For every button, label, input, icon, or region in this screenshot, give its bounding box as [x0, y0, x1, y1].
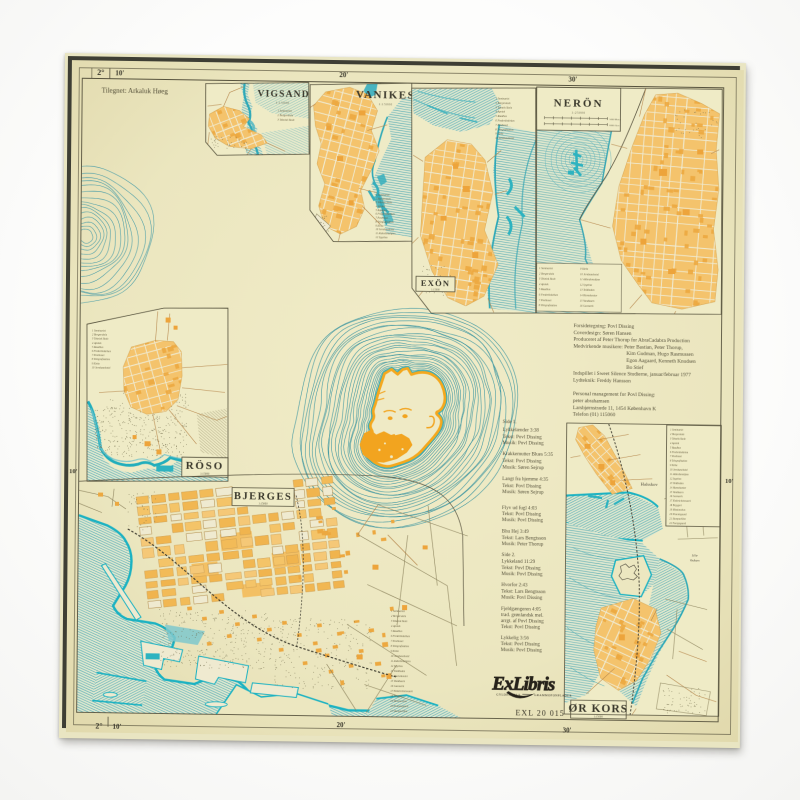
svg-text:Flyv ud fugl 4:03: Flyv ud fugl 4:03 — [502, 506, 537, 512]
svg-text:7 Posthuset: 7 Posthuset — [495, 124, 508, 127]
svg-text:Side 2.: Side 2. — [502, 553, 516, 558]
svg-text:10 Jernbanehotel: 10 Jernbanehotel — [495, 137, 514, 140]
svg-text:9 Kirke: 9 Kirke — [391, 650, 400, 653]
svg-text:Larsbjørnstræde 11, 1454 Køben: Larsbjørnstræde 11, 1454 København K — [573, 405, 657, 412]
svg-text:BJERGES: BJERGES — [234, 491, 292, 503]
svg-text:9 Kirke: 9 Kirke — [670, 464, 678, 467]
svg-text:22 Faergegaard: 22 Faergegaard — [669, 522, 686, 525]
svg-text:4 Apotek: 4 Apotek — [92, 342, 102, 345]
svg-text:11 Alderdomshjem: 11 Alderdomshjem — [375, 232, 395, 235]
svg-text:14 Havnekontor: 14 Havnekontor — [670, 486, 687, 489]
svg-text:6 Frederikskirken: 6 Frederikskirken — [670, 451, 689, 454]
svg-text:18 Bryggeri: 18 Bryggeri — [670, 504, 683, 507]
svg-text:Tilegnet: Arkaluk Høeg: Tilegnet: Arkaluk Høeg — [102, 87, 169, 96]
svg-text:11 Alderdomshjem: 11 Alderdomshjem — [670, 473, 689, 476]
svg-text:Musik: Peter Thorup: Musik: Peter Thorup — [502, 542, 544, 548]
svg-text:14 Havnekontor: 14 Havnekontor — [580, 294, 598, 297]
svg-text:VANIKES: VANIKES — [356, 89, 415, 102]
svg-text:12 Sygehus: 12 Sygehus — [580, 284, 592, 287]
svg-text:10 Jernbanehotel: 10 Jernbanehotel — [391, 655, 410, 658]
svg-text:Hvorfor 2:43: Hvorfor 2:43 — [501, 583, 528, 588]
svg-text:NERÖN: NERÖN — [554, 96, 604, 110]
svg-text:VIGSAND: VIGSAND — [258, 89, 310, 100]
svg-text:10': 10' — [115, 69, 124, 77]
svg-text:3 Teknisk Skole: 3 Teknisk Skole — [539, 278, 556, 281]
svg-text:12 Sygehus: 12 Sygehus — [670, 477, 682, 480]
svg-text:1:15000: 1:15000 — [431, 288, 440, 291]
svg-text:5000 Meter: 5000 Meter — [609, 118, 620, 121]
svg-text:2 Borgerskole: 2 Borgerskole — [670, 433, 685, 436]
svg-text:EXL 20 015: EXL 20 015 — [516, 708, 565, 718]
svg-text:10': 10' — [725, 478, 734, 485]
svg-text:17 Elektricitetsvaerk: 17 Elektricitetsvaerk — [670, 500, 692, 503]
svg-text:arrgt. af Povl Dissing: arrgt. af Povl Dissing — [501, 619, 544, 625]
svg-text:2 Borgerskole: 2 Borgerskole — [496, 102, 512, 105]
svg-text:17 Elektricitetsvaerk: 17 Elektricitetsvaerk — [390, 690, 413, 693]
svg-text:1 Seminariet: 1 Seminariet — [277, 110, 291, 113]
svg-text:Vindhavn: Vindhavn — [690, 559, 700, 562]
svg-text:3 Teknisk Skole: 3 Teknisk Skole — [277, 119, 295, 122]
svg-text:Egon Aagaard, Kenneth Knudsen: Egon Aagaard, Kenneth Knudsen — [626, 358, 696, 365]
svg-text:1 Seminariet: 1 Seminariet — [670, 429, 683, 432]
svg-text:7 Posthuset: 7 Posthuset — [670, 455, 682, 458]
svg-text:Tekst: Povl Dissing: Tekst: Povl Dissing — [501, 642, 541, 648]
svg-text:2 Borgerskole: 2 Borgerskole — [92, 334, 108, 337]
svg-text:ØR KORS: ØR KORS — [568, 703, 628, 716]
svg-text:30': 30' — [563, 726, 572, 734]
svg-text:4 Apotek: 4 Apotek — [670, 442, 680, 445]
svg-text:9 Kirke: 9 Kirke — [580, 268, 589, 271]
svg-text:Tekst: Povl Dissing: Tekst: Povl Dissing — [503, 435, 543, 441]
svg-text:6000 Alen: 6000 Alen — [609, 124, 620, 127]
svg-text:1 Seminariet: 1 Seminariet — [539, 267, 553, 270]
svg-text:20 Praestegaard: 20 Praestegaard — [390, 705, 409, 708]
svg-text:14 Havnekontor: 14 Havnekontor — [390, 675, 408, 678]
svg-text:13 Toldboden: 13 Toldboden — [670, 482, 685, 485]
svg-text:10 Jernbanehotel: 10 Jernbanehotel — [375, 228, 394, 231]
svg-text:10': 10' — [69, 468, 78, 475]
svg-text:1 Seminariet: 1 Seminariet — [496, 97, 510, 100]
svg-text:12 Sygehus: 12 Sygehus — [391, 665, 403, 668]
svg-text:19 Missionshus: 19 Missionshus — [669, 509, 685, 512]
svg-text:5 Raadhus: 5 Raadhus — [670, 446, 681, 449]
svg-text:3 Teknisk Skole: 3 Teknisk Skole — [670, 437, 687, 440]
svg-text:Forsidetegning: Povl Dissing: Forsidetegning: Povl Dissing — [574, 323, 635, 330]
svg-text:13 Toldboden: 13 Toldboden — [391, 670, 406, 673]
svg-text:9 Kirke: 9 Kirke — [92, 362, 101, 365]
svg-text:4 Apotek: 4 Apotek — [376, 205, 386, 208]
svg-text:15 Vandtaarn: 15 Vandtaarn — [580, 299, 595, 302]
svg-text:Langt fra hjemme 4:35: Langt fra hjemme 4:35 — [502, 477, 548, 483]
svg-text:2°: 2° — [95, 722, 102, 731]
svg-text:2°: 2° — [97, 68, 104, 77]
svg-text:GRAMMOFONPLADER: GRAMMOFONPLADER — [534, 693, 572, 698]
svg-text:1 Seminariet: 1 Seminariet — [391, 610, 405, 613]
svg-text:2 Borgerskole: 2 Borgerskole — [376, 197, 392, 200]
svg-text:Lykkelænder 3:38: Lykkelænder 3:38 — [503, 428, 540, 434]
svg-text:Tekst: Lars Bengtsson: Tekst: Lars Bengtsson — [501, 589, 546, 595]
svg-text:8 Telegrafstation: 8 Telegrafstation — [92, 358, 111, 361]
svg-text:Halsskov: Halsskov — [641, 482, 659, 487]
svg-text:Lydteknik: Freddy Hansson: Lydteknik: Freddy Hansson — [573, 377, 631, 384]
svg-text:Tekst: Povl Dissing: Tekst: Povl Dissing — [502, 459, 542, 465]
svg-text:11 Alderdomshjem: 11 Alderdomshjem — [391, 660, 411, 663]
svg-text:1 Seminariet: 1 Seminariet — [92, 329, 106, 332]
svg-text:Side 1.: Side 1. — [503, 420, 517, 425]
svg-text:1:15000: 1:15000 — [276, 101, 290, 105]
svg-text:9 Kirke: 9 Kirke — [375, 224, 384, 227]
svg-text:trad. grønlandsk mel.: trad. grønlandsk mel. — [501, 613, 544, 619]
svg-text:Bo Stief: Bo Stief — [626, 364, 643, 371]
svg-text:6 Frederikskirken: 6 Frederikskirken — [495, 119, 515, 122]
svg-text:21 Skovpavillon: 21 Skovpavillon — [390, 710, 408, 713]
svg-text:5 Raadhus: 5 Raadhus — [495, 115, 506, 118]
svg-text:Lillø: Lillø — [691, 553, 698, 557]
svg-text:12 Sygehus: 12 Sygehus — [375, 236, 387, 239]
svg-text:Musik: Povl Dissing: Musik: Povl Dissing — [503, 441, 545, 447]
svg-text:5 Raadhus: 5 Raadhus — [376, 209, 387, 212]
svg-text:6 Frederikskirken: 6 Frederikskirken — [539, 294, 559, 297]
svg-text:5 Raadhus: 5 Raadhus — [391, 630, 402, 633]
svg-text:4 Apotek: 4 Apotek — [496, 111, 506, 114]
svg-text:Musik: Søren Sejrup: Musik: Søren Sejrup — [502, 465, 544, 471]
svg-text:5 Raadhus: 5 Raadhus — [539, 288, 550, 291]
svg-text:Musik: Povl Dissing: Musik: Povl Dissing — [501, 595, 543, 601]
svg-text:2 Borgerskole: 2 Borgerskole — [391, 615, 407, 618]
svg-text:10 Jernbanehotel: 10 Jernbanehotel — [670, 469, 688, 472]
svg-text:6 Frederikskirken: 6 Frederikskirken — [391, 635, 411, 638]
svg-text:15 Vandtaarn: 15 Vandtaarn — [670, 491, 685, 494]
svg-text:Kim Gudman, Hugo Rasmussen: Kim Gudman, Hugo Rasmussen — [626, 351, 694, 358]
svg-text:15 Vandtaarn: 15 Vandtaarn — [390, 680, 405, 683]
svg-text:3 Teknisk Skole: 3 Teknisk Skole — [376, 201, 393, 204]
svg-text:8 Telegrafstation: 8 Telegrafstation — [391, 645, 410, 648]
svg-text:18 Bryggeri: 18 Bryggeri — [390, 695, 403, 698]
svg-text:16 Gasvaerk: 16 Gasvaerk — [580, 305, 594, 308]
svg-text:11 Alderdomshjem: 11 Alderdomshjem — [580, 278, 600, 281]
svg-text:7 Posthuset: 7 Posthuset — [539, 299, 552, 302]
svg-text:20': 20' — [339, 71, 348, 79]
svg-text:7 Posthuset: 7 Posthuset — [376, 217, 389, 220]
svg-text:2 Borgerskole: 2 Borgerskole — [539, 272, 555, 275]
svg-text:20': 20' — [337, 721, 346, 729]
svg-text:1:15000: 1:15000 — [379, 102, 393, 106]
svg-text:Coverdesign: Søren Hansen: Coverdesign: Søren Hansen — [574, 330, 632, 337]
svg-text:Musik: Povl Dissing: Musik: Povl Dissing — [501, 572, 543, 578]
svg-text:16 Gasvaerk: 16 Gasvaerk — [670, 495, 684, 498]
svg-text:Musik: Povl Dissing: Musik: Povl Dissing — [501, 648, 543, 654]
svg-text:8 Telegrafstation: 8 Telegrafstation — [495, 128, 514, 131]
svg-text:3 Teknisk Skole: 3 Teknisk Skole — [391, 620, 408, 623]
svg-text:8 Telegrafstation: 8 Telegrafstation — [670, 460, 688, 463]
svg-text:Bhu Hej 3:49: Bhu Hej 3:49 — [502, 529, 529, 534]
svg-text:EXÖN: EXÖN — [421, 278, 450, 288]
svg-text:20 Praestegaard: 20 Praestegaard — [669, 513, 687, 516]
svg-text:Tekst: Lars Bengtsson: Tekst: Lars Bengtsson — [502, 536, 547, 542]
svg-text:Musik: Povl Dissing: Musik: Povl Dissing — [502, 518, 544, 524]
svg-text:16 Gasvaerk: 16 Gasvaerk — [390, 685, 404, 688]
svg-text:Tekst: Povl Dissing: Tekst: Povl Dissing — [502, 512, 542, 518]
svg-text:30': 30' — [568, 75, 577, 83]
svg-text:4 Apotek: 4 Apotek — [539, 283, 549, 286]
svg-text:Musik: Søren Sejrup: Musik: Søren Sejrup — [502, 490, 544, 496]
svg-text:Fjeldgængeren 4:05: Fjeldgængeren 4:05 — [501, 607, 541, 613]
svg-text:1:15000: 1:15000 — [258, 502, 268, 505]
svg-text:10 Jernbanehotel: 10 Jernbanehotel — [580, 273, 599, 276]
svg-text:13 Toldboden: 13 Toldboden — [580, 289, 595, 292]
svg-text:1:25000: 1:25000 — [571, 111, 585, 115]
svg-text:4 Apotek: 4 Apotek — [391, 625, 401, 628]
svg-text:1 Seminariet: 1 Seminariet — [376, 194, 390, 197]
svg-text:8 Telegrafstation: 8 Telegrafstation — [539, 304, 558, 307]
svg-text:3 Teknisk Skole: 3 Teknisk Skole — [92, 338, 109, 341]
svg-text:2 Borgerskole: 2 Borgerskole — [277, 114, 293, 117]
svg-text:7 Posthuset: 7 Posthuset — [92, 354, 105, 357]
svg-text:10 Jernbanehotel: 10 Jernbanehotel — [92, 366, 111, 369]
svg-text:3 Teknisk Skole: 3 Teknisk Skole — [496, 106, 513, 109]
svg-text:5 Raadhus: 5 Raadhus — [92, 346, 103, 349]
svg-text:1:15000: 1:15000 — [200, 473, 210, 476]
svg-text:Lykkeland 11:29: Lykkeland 11:29 — [502, 559, 536, 565]
svg-text:10': 10' — [112, 723, 121, 731]
svg-text:1:15000: 1:15000 — [594, 715, 604, 718]
svg-text:Krakkemutter Blues 5:35: Krakkemutter Blues 5:35 — [502, 452, 553, 458]
svg-text:8 Telegrafstation: 8 Telegrafstation — [376, 221, 395, 224]
svg-text:peter abrahamsen: peter abrahamsen — [573, 398, 610, 405]
svg-text:21 Skovpavillon: 21 Skovpavillon — [669, 518, 686, 521]
svg-text:Tekst: Povl Dissing: Tekst: Povl Dissing — [502, 484, 542, 490]
svg-text:6 Frederikskirken: 6 Frederikskirken — [92, 350, 112, 353]
svg-text:9 Kirke: 9 Kirke — [495, 133, 504, 136]
svg-text:Lykkelig 3:56: Lykkelig 3:56 — [501, 636, 529, 641]
svg-text:Telefon (01) 115060: Telefon (01) 115060 — [573, 411, 616, 419]
svg-text:19 Missionshus: 19 Missionshus — [390, 700, 407, 703]
svg-text:6 Frederikskirken: 6 Frederikskirken — [376, 213, 396, 216]
svg-text:RÖSO: RÖSO — [186, 459, 224, 473]
svg-text:Tekst: Povl Dissing: Tekst: Povl Dissing — [501, 625, 541, 631]
svg-text:Tekst: Povl Dissing: Tekst: Povl Dissing — [501, 566, 541, 572]
svg-text:GYLDENDALS: GYLDENDALS — [496, 692, 520, 696]
svg-text:7 Posthuset: 7 Posthuset — [391, 640, 404, 643]
